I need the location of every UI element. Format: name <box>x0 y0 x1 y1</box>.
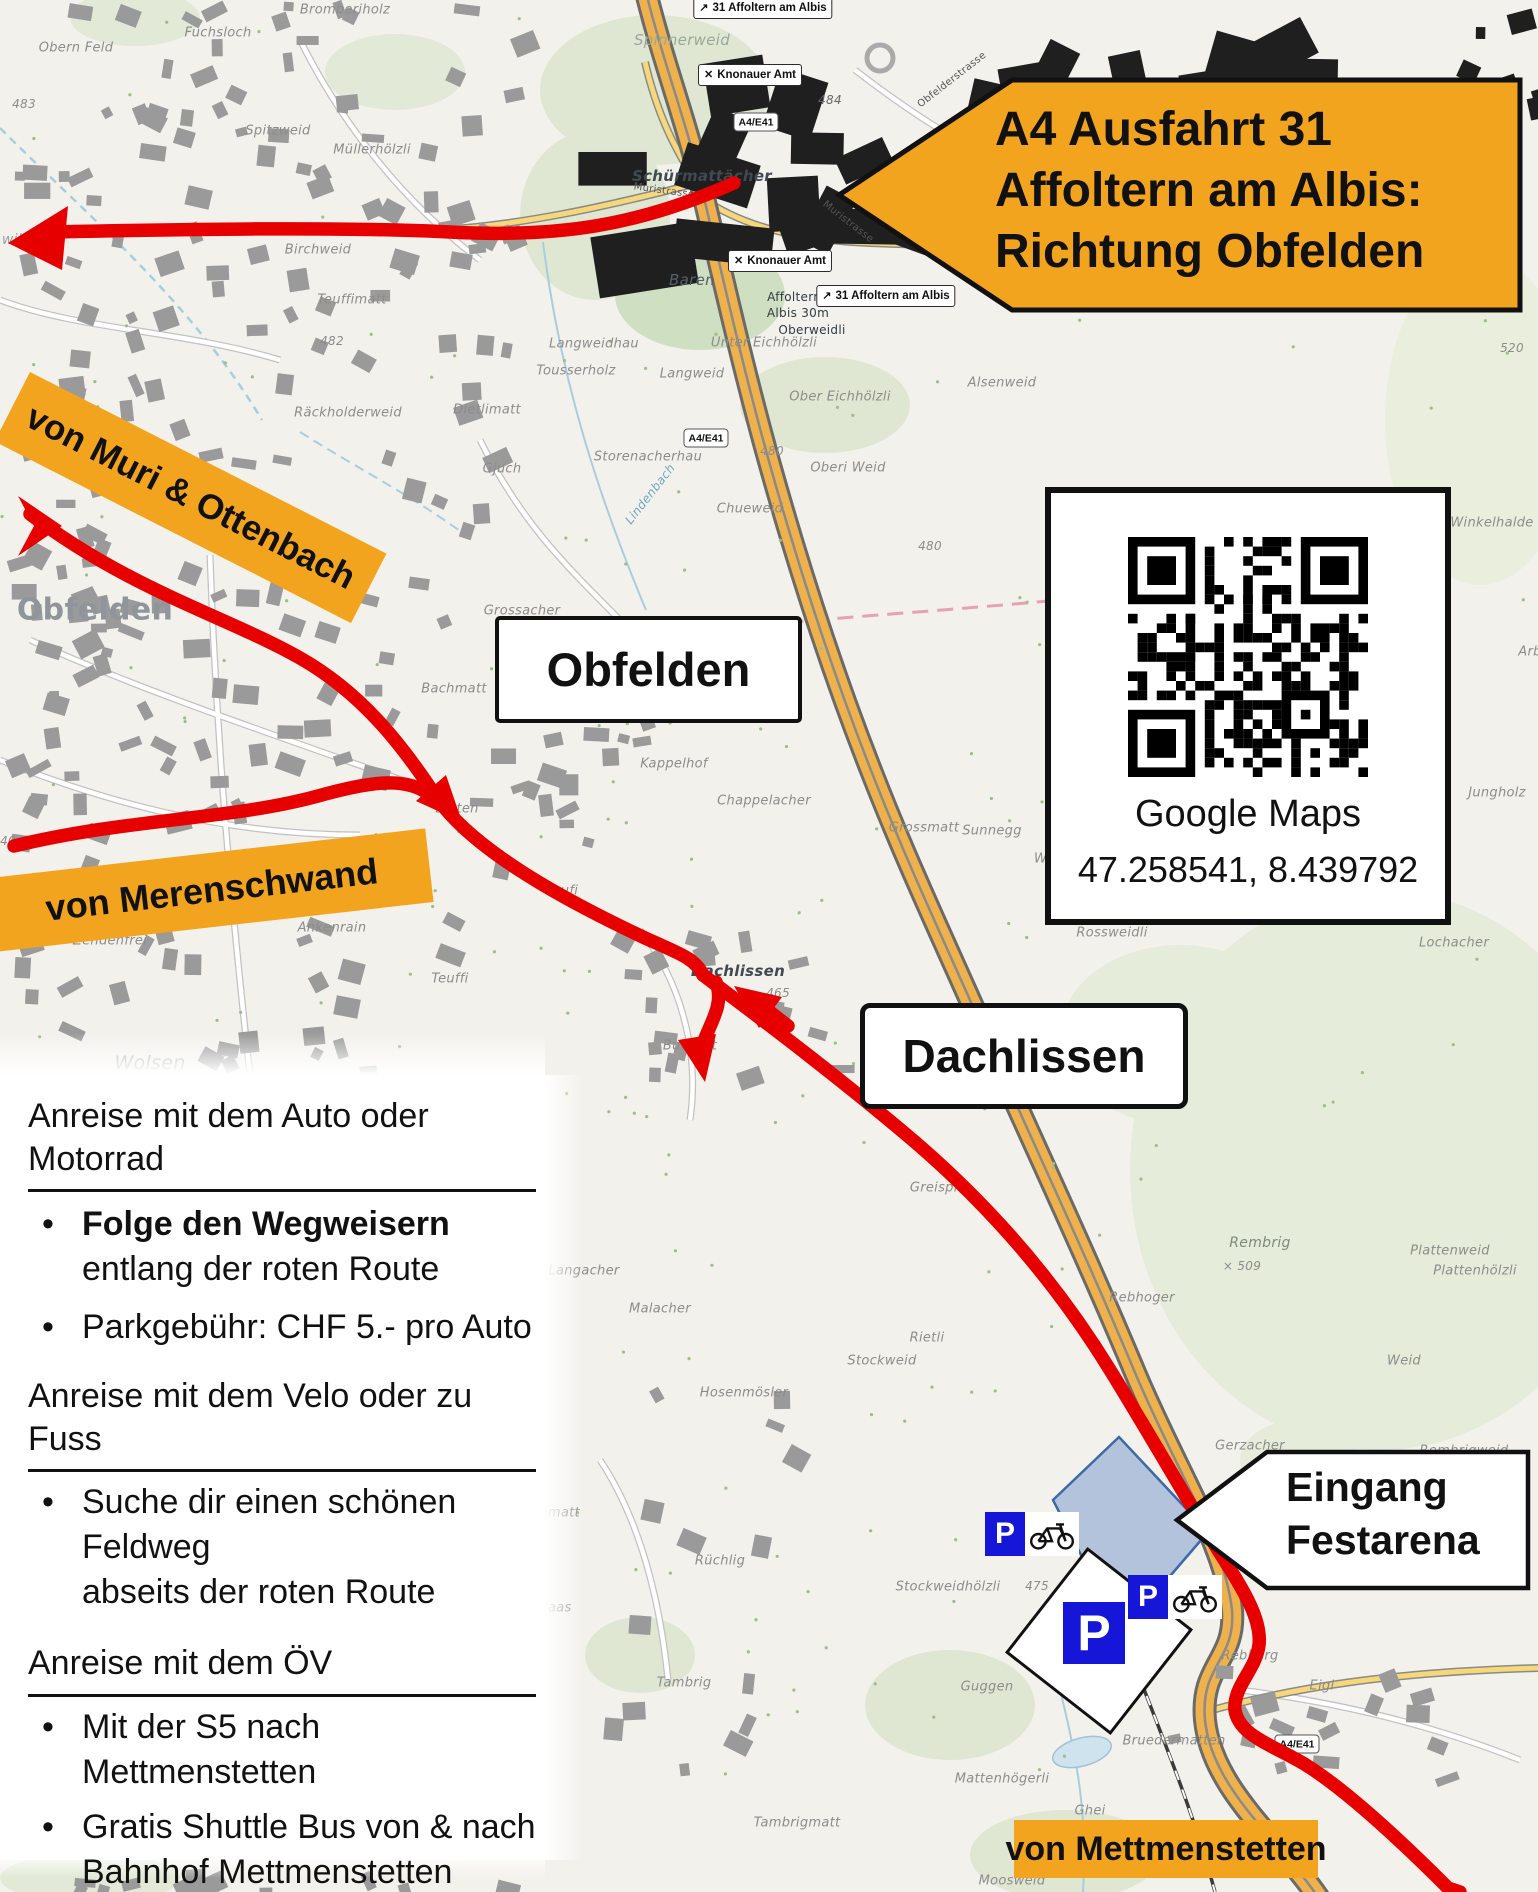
bullet-text: Gratis Shuttle Bus von & nach <box>82 1805 536 1850</box>
bullet-item: Folge den Wegweisern entlang der roten R… <box>28 1202 545 1292</box>
qr-code <box>1128 537 1368 777</box>
origin-label-mettmenstetten: von Mettmenstetten <box>1014 1820 1318 1878</box>
section-heading-auto: Anreise mit dem Auto oder Motorrad <box>28 1095 536 1192</box>
section-heading-velo: Anreise mit dem Velo oder zu Fuss <box>28 1375 536 1472</box>
bullet-item: Parkgebühr: CHF 5.- pro Auto <box>28 1305 545 1350</box>
place-box-obfelden: Obfelden <box>495 616 802 723</box>
info-panel: Anreise mit dem Auto oder Motorrad Folge… <box>0 1075 545 1860</box>
section-heading-oev: Anreise mit dem ÖV <box>28 1642 536 1697</box>
bullet-text: entlang der roten Route <box>82 1250 439 1288</box>
qr-caption: Google Maps <box>1051 793 1445 836</box>
bullet-text: Parkgebühr: CHF 5.- pro Auto <box>82 1305 532 1350</box>
bullet-text: Suche dir einen schönen Feldweg <box>82 1480 545 1570</box>
place-box-dachlissen: Dachlissen <box>860 1003 1188 1109</box>
bullet-bold-text: Folge den Wegweisern <box>82 1202 450 1247</box>
entrance-sign-text: Eingang Festarena <box>1286 1461 1480 1567</box>
panel-fade <box>545 1075 583 1860</box>
exit-sign-text: A4 Ausfahrt 31 Affoltern am Albis: Richt… <box>995 99 1535 282</box>
bullet-item: Gratis Shuttle Bus von & nach Bahnhof Me… <box>28 1805 545 1892</box>
arrival-map-poster: BromberiholzFuchslochObern Feld483Spitzw… <box>0 0 1538 1892</box>
bullet-item: Suche dir einen schönen Feldweg abseits … <box>28 1480 545 1615</box>
bullet-text: Bahnhof Mettmenstetten <box>82 1850 536 1892</box>
bullet-text: abseits der roten Route <box>82 1570 545 1615</box>
bullet-item: Mit der S5 nach Mettmenstetten <box>28 1705 545 1795</box>
panel-fade <box>0 1033 545 1075</box>
qr-coordinates: 47.258541, 8.439792 <box>1051 849 1445 891</box>
qr-card: Google Maps 47.258541, 8.439792 <box>1045 487 1451 925</box>
bullet-text: Mit der S5 nach Mettmenstetten <box>82 1705 545 1795</box>
